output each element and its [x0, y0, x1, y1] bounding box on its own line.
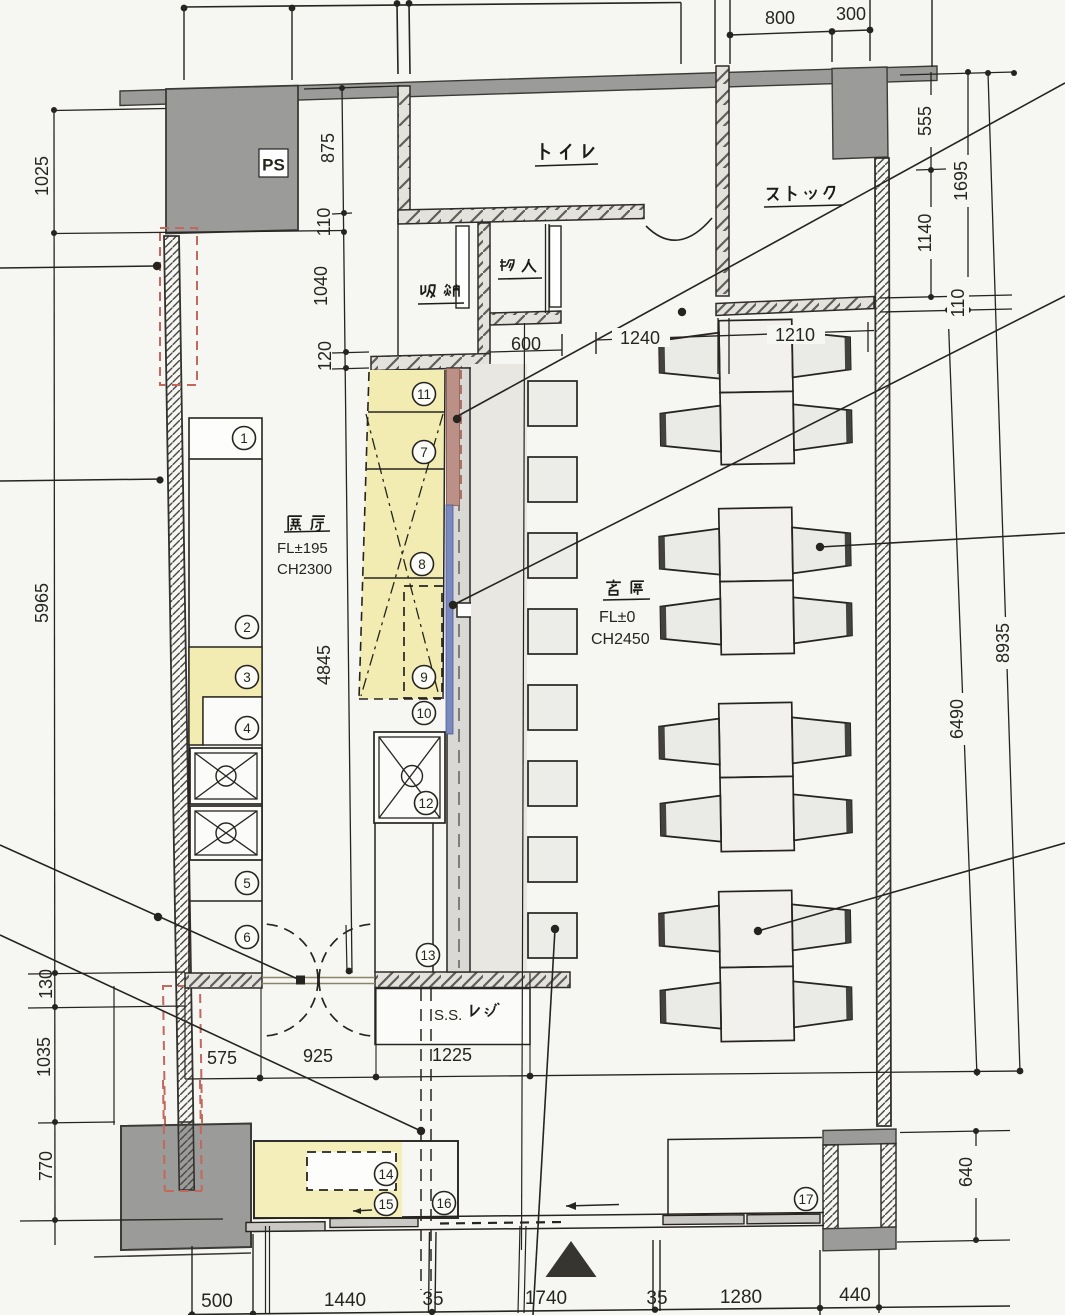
svg-text:800: 800	[765, 8, 795, 28]
svg-text:1440: 1440	[324, 1290, 366, 1311]
svg-text:6490: 6490	[947, 699, 967, 739]
svg-text:PS: PS	[262, 156, 285, 175]
svg-text:FL±195: FL±195	[277, 540, 328, 557]
svg-text:120: 120	[315, 341, 335, 371]
svg-text:1: 1	[240, 431, 248, 446]
svg-text:35: 35	[646, 1288, 667, 1309]
svg-text:130: 130	[36, 969, 56, 999]
svg-text:5: 5	[243, 876, 251, 891]
svg-text:1140: 1140	[915, 214, 935, 253]
svg-text:13: 13	[420, 948, 435, 963]
svg-text:8935: 8935	[993, 623, 1013, 663]
svg-text:12: 12	[418, 796, 433, 811]
svg-text:1240: 1240	[620, 328, 660, 348]
svg-text:500: 500	[201, 1291, 233, 1312]
svg-text:1740: 1740	[525, 1288, 567, 1309]
svg-text:8: 8	[418, 557, 426, 572]
svg-text:925: 925	[303, 1046, 333, 1066]
svg-text:6: 6	[243, 930, 251, 945]
svg-text:110: 110	[314, 208, 334, 237]
svg-text:4845: 4845	[314, 645, 334, 685]
svg-text:35: 35	[422, 1289, 443, 1310]
svg-text:3: 3	[243, 670, 251, 685]
svg-text:14: 14	[378, 1167, 394, 1182]
svg-text:7: 7	[420, 445, 428, 460]
svg-text:11: 11	[417, 387, 431, 402]
svg-text:110: 110	[948, 289, 968, 318]
svg-text:CH2450: CH2450	[591, 631, 650, 648]
svg-text:875: 875	[318, 133, 338, 163]
svg-text:10: 10	[416, 706, 431, 721]
svg-text:770: 770	[36, 1151, 56, 1181]
svg-text:16: 16	[436, 1196, 451, 1211]
svg-text:1695: 1695	[951, 161, 971, 201]
svg-text:FL±0: FL±0	[599, 609, 635, 626]
svg-text:15: 15	[378, 1197, 393, 1212]
svg-text:1025: 1025	[32, 156, 52, 196]
svg-text:2: 2	[243, 620, 251, 635]
svg-text:575: 575	[207, 1048, 237, 1068]
svg-text:600: 600	[511, 334, 541, 354]
svg-text:1225: 1225	[432, 1045, 472, 1065]
svg-text:CH2300: CH2300	[277, 561, 332, 578]
svg-text:1210: 1210	[775, 325, 815, 345]
svg-text:1035: 1035	[34, 1037, 54, 1077]
svg-text:555: 555	[915, 106, 935, 136]
svg-text:1040: 1040	[311, 266, 331, 306]
svg-text:440: 440	[839, 1285, 871, 1306]
svg-text:17: 17	[798, 1192, 813, 1207]
svg-text:1280: 1280	[720, 1287, 762, 1308]
svg-text:4: 4	[243, 721, 251, 736]
svg-text:9: 9	[420, 670, 428, 685]
svg-text:300: 300	[836, 4, 866, 24]
svg-text:640: 640	[956, 1157, 976, 1187]
svg-text:S.S.: S.S.	[434, 1007, 462, 1024]
svg-text:5965: 5965	[32, 583, 52, 623]
